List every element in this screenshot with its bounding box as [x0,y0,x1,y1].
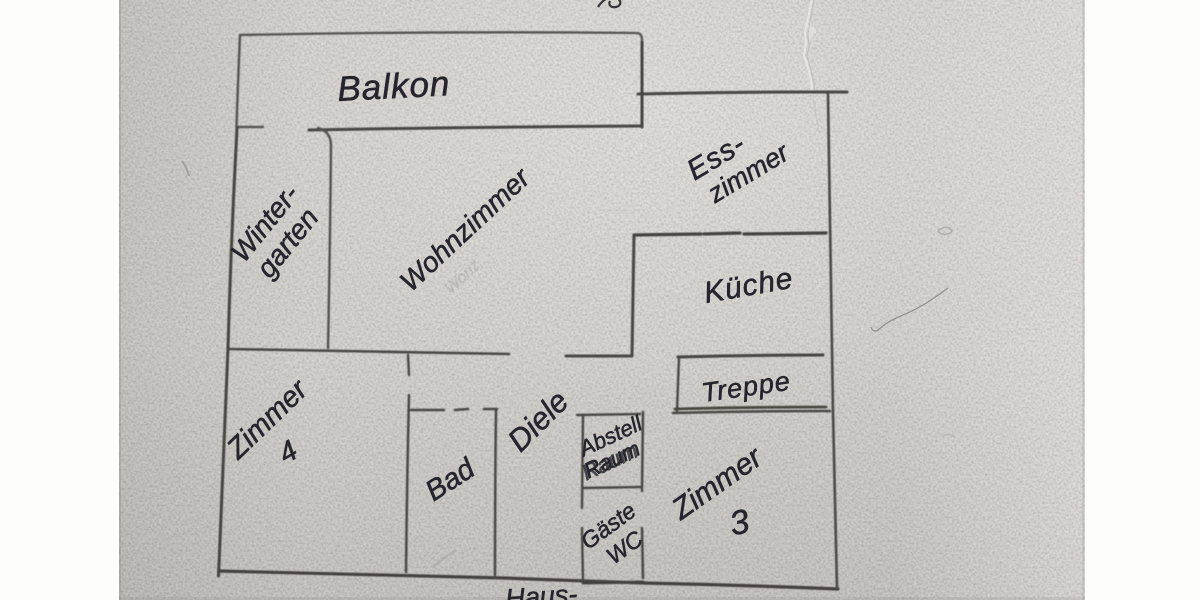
svg-text:Balkon: Balkon [336,64,451,109]
